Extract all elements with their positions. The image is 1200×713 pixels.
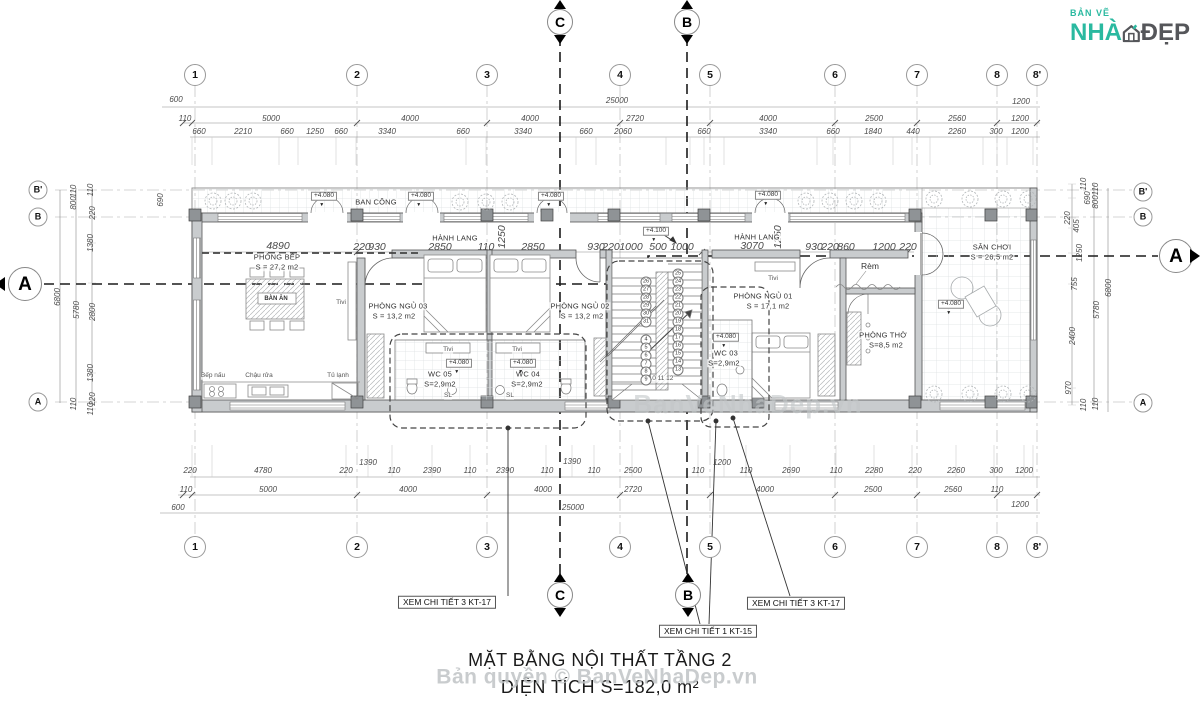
interior-dim-label: 2850 xyxy=(521,242,544,253)
grid-bubble: 5 xyxy=(699,536,721,558)
grid-bubble: 8' xyxy=(1026,536,1048,558)
dim-label: 220 xyxy=(908,467,921,475)
dim-label: 220 xyxy=(183,467,196,475)
grid-bubble: 8' xyxy=(1026,64,1048,86)
elevation-marker: +4.080 xyxy=(755,191,781,200)
logo-word-dep: ĐẸP xyxy=(1141,21,1190,45)
dim-label: 110 xyxy=(87,403,95,416)
dim-label: 2690 xyxy=(782,467,800,475)
fixture-label: SL xyxy=(444,393,452,400)
fixture-label: Tủ lạnh xyxy=(327,373,349,380)
interior-dim-label: 110 xyxy=(478,242,495,253)
room-label: HÀNH LANG xyxy=(733,233,781,241)
dim-label: 220 xyxy=(339,467,352,475)
dim-label: 405 xyxy=(1073,219,1081,232)
dim-label: 25000 xyxy=(562,504,584,512)
dim-label: 2060 xyxy=(614,128,632,136)
interior-dim-label: 1000 xyxy=(619,242,642,253)
grid-bubble: B' xyxy=(1134,183,1153,202)
dim-label: 110 xyxy=(692,467,705,475)
room-label: PHÒNG NGỦ 03 xyxy=(367,302,428,310)
dim-label: 2390 xyxy=(423,467,441,475)
dim-label: 25000 xyxy=(606,97,628,105)
room-label: S=2,9m2 xyxy=(707,359,741,367)
house-logo-icon xyxy=(1122,18,1141,48)
interior-dim-label: 1250 xyxy=(497,225,508,248)
dim-label: 2800 xyxy=(89,303,97,321)
fixture-label: 10 11 12 xyxy=(649,376,674,383)
room-label: S=2,9m2 xyxy=(510,380,544,388)
room-label: S = 13,2 m2 xyxy=(560,312,605,320)
dim-label: 110 xyxy=(464,467,477,475)
dim-label: 4000 xyxy=(759,115,777,123)
interior-dim-label: 860 xyxy=(837,242,855,253)
section-marker: A xyxy=(8,267,42,301)
dim-label: 1380 xyxy=(87,234,95,252)
dim-label: 110 xyxy=(1080,178,1088,191)
elevation-marker: +4.080 xyxy=(446,359,472,368)
dim-label: 4000 xyxy=(534,486,552,494)
grid-bubble: 7 xyxy=(906,64,928,86)
brand-logo: BẢN VẼ NHÀ ĐẸP xyxy=(1070,8,1190,48)
section-marker: C xyxy=(547,9,573,35)
dim-label: 1250 xyxy=(306,128,324,136)
dim-label: 660 xyxy=(826,128,839,136)
dim-label: 800 xyxy=(1092,195,1100,208)
room-label: S=8,5 m2 xyxy=(868,341,904,349)
dim-label: 970 xyxy=(1065,381,1073,394)
dim-label: 110 xyxy=(1080,399,1088,412)
dim-label: 5000 xyxy=(262,115,280,123)
dim-label: 1200 xyxy=(1011,501,1029,509)
grid-bubble: 1 xyxy=(184,536,206,558)
grid-bubble: A xyxy=(29,393,48,412)
elevation-marker: +4.080 xyxy=(538,192,564,201)
dim-label: 110 xyxy=(541,467,554,475)
dim-label: 2260 xyxy=(948,128,966,136)
interior-dim-label: 930 xyxy=(368,242,386,253)
dim-label: 110 xyxy=(588,467,601,475)
fixture-label: Bếp nấu xyxy=(201,373,225,380)
annotation-layer: 6002500012001105000400040002720400025002… xyxy=(0,0,1200,713)
elevation-marker: +4.080 xyxy=(938,300,964,309)
elevation-marker: +4.080 xyxy=(510,359,536,368)
stair-step-number: 9 xyxy=(641,375,652,386)
section-marker: B xyxy=(675,582,701,608)
dim-label: 440 xyxy=(906,128,919,136)
fixture-label: Tivi xyxy=(768,276,778,283)
dim-label: 1390 xyxy=(563,458,581,466)
room-label: HÀNH LANG xyxy=(431,234,479,242)
dim-label: 5780 xyxy=(73,301,81,319)
dim-label: 3340 xyxy=(514,128,532,136)
fixture-label: Tivi xyxy=(443,347,453,354)
room-label: PHÒNG THỜ xyxy=(858,331,908,339)
grid-bubble: 2 xyxy=(346,64,368,86)
dim-label: 2720 xyxy=(624,486,642,494)
dim-label: 660 xyxy=(280,128,293,136)
copyright-watermark: Bản quyền © BanVeNhaDep.vn xyxy=(436,667,757,688)
section-marker: B xyxy=(674,9,700,35)
dim-label: 300 xyxy=(989,467,1002,475)
dim-label: 110 xyxy=(87,184,95,197)
elevation-marker: +4.080 xyxy=(311,192,337,201)
room-label: S = 17,1 m2 xyxy=(746,302,791,310)
grid-bubble: B' xyxy=(29,181,48,200)
grid-bubble: 5 xyxy=(699,64,721,86)
interior-dim-label: 220 xyxy=(899,242,917,253)
logo-word-nha: NHÀ xyxy=(1070,21,1122,45)
dim-label: 6800 xyxy=(1105,279,1113,297)
dim-label: 660 xyxy=(334,128,347,136)
interior-dim-label: 1200 xyxy=(872,242,895,253)
dim-label: 1200 xyxy=(1012,98,1030,106)
grid-bubble: 6 xyxy=(824,64,846,86)
dim-label: 660 xyxy=(579,128,592,136)
dim-label: 4000 xyxy=(756,486,774,494)
room-label: S = 27,2 m2 xyxy=(255,263,300,271)
room-label: S = 26,5 m2 xyxy=(970,253,1015,261)
dim-label: 2390 xyxy=(496,467,514,475)
dim-label: 2560 xyxy=(948,115,966,123)
stair-step-number: 13 xyxy=(673,365,684,376)
dim-label: 1200 xyxy=(1011,128,1029,136)
dim-label: 660 xyxy=(697,128,710,136)
dim-label: 800 xyxy=(70,196,78,209)
dim-label: 1390 xyxy=(359,459,377,467)
dim-label: 2400 xyxy=(1069,327,1077,345)
interior-dim-label: 220 xyxy=(602,242,620,253)
grid-bubble: 6 xyxy=(824,536,846,558)
dim-label: 1840 xyxy=(864,128,882,136)
dim-label: 690 xyxy=(157,193,165,206)
dim-label: 600 xyxy=(171,504,184,512)
watermark-center: BanVeNhaDep.vn xyxy=(633,391,862,417)
dim-label: 6800 xyxy=(54,288,62,306)
room-label: S = 13,2 m2 xyxy=(372,312,417,320)
fixture-label: Tivi xyxy=(512,347,522,354)
dim-label: 5000 xyxy=(259,486,277,494)
dim-label: 755 xyxy=(1071,277,1079,290)
dim-label: 110 xyxy=(388,467,401,475)
grid-bubble: 8 xyxy=(986,64,1008,86)
elevation-marker: +4.080 xyxy=(408,192,434,201)
grid-bubble: 3 xyxy=(476,536,498,558)
detail-callout: XEM CHI TIẾT 3 KT-17 xyxy=(398,596,496,609)
dim-label: 220 xyxy=(89,206,97,219)
room-label: PHÒNG NGỦ 02 xyxy=(549,302,610,310)
dim-label: 2560 xyxy=(944,486,962,494)
dim-label: 110 xyxy=(1092,398,1100,411)
dim-label: 660 xyxy=(192,128,205,136)
interior-dim-label: 930 xyxy=(805,242,823,253)
fixture-label: SL xyxy=(506,393,514,400)
room-label: SÂN CHƠI xyxy=(972,243,1012,251)
room-label: WC 03 xyxy=(713,349,739,357)
fixture-label: Rèm xyxy=(861,262,879,271)
dim-label: 1380 xyxy=(87,364,95,382)
fixture-label: Tivi xyxy=(336,300,346,307)
dim-label: 110 xyxy=(991,486,1004,494)
dim-label: 2280 xyxy=(865,467,883,475)
dim-label: 2500 xyxy=(624,467,642,475)
interior-dim-label: 4890 xyxy=(266,241,289,252)
room-label: BAN CÔNG xyxy=(354,198,398,206)
dim-label: 110 xyxy=(740,467,753,475)
dim-label: 110 xyxy=(1092,183,1100,196)
dim-label: 2500 xyxy=(865,115,883,123)
grid-bubble: 7 xyxy=(906,536,928,558)
interior-dim-label: 2850 xyxy=(428,242,451,253)
grid-bubble: 4 xyxy=(609,64,631,86)
dim-label: 660 xyxy=(456,128,469,136)
dim-label: 1200 xyxy=(713,459,731,467)
interior-dim-label: 220 xyxy=(821,242,839,253)
stair-step-number: 31 xyxy=(641,317,652,328)
dim-label: 300 xyxy=(989,128,1002,136)
dim-label: 110 xyxy=(179,115,192,123)
grid-bubble: A xyxy=(1134,394,1153,413)
interior-dim-label: 1000 xyxy=(670,242,693,253)
grid-bubble: B xyxy=(1134,208,1153,227)
grid-bubble: 8 xyxy=(986,536,1008,558)
elevation-marker: +4.080 xyxy=(713,333,739,342)
dim-label: 1200 xyxy=(1011,115,1029,123)
detail-callout: XEM CHI TIẾT 1 KT-15 xyxy=(659,625,757,638)
dim-label: 2500 xyxy=(864,486,882,494)
grid-bubble: 3 xyxy=(476,64,498,86)
interior-dim-label: 3070 xyxy=(740,241,763,252)
floor-plan-sheet: 6002500012001105000400040002720400025002… xyxy=(0,0,1200,713)
room-label: S=2,9m2 xyxy=(423,380,457,388)
dim-label: 4000 xyxy=(401,115,419,123)
grid-bubble: B xyxy=(29,208,48,227)
dim-label: 2210 xyxy=(234,128,252,136)
detail-callout: XEM CHI TIẾT 3 KT-17 xyxy=(747,597,845,610)
dim-label: 600 xyxy=(169,96,182,104)
room-label: WC 05 xyxy=(427,370,453,378)
section-marker: A xyxy=(1159,239,1193,273)
dim-label: 3340 xyxy=(759,128,777,136)
dim-label: 220 xyxy=(1064,211,1072,224)
dim-label: 5780 xyxy=(1093,301,1101,319)
section-marker: C xyxy=(547,582,573,608)
dim-label: 1200 xyxy=(1015,467,1033,475)
dim-label: 110 xyxy=(180,486,193,494)
dim-label: 4780 xyxy=(254,467,272,475)
dim-label: 2720 xyxy=(626,115,644,123)
dim-label: 110 xyxy=(830,467,843,475)
dim-label: 4000 xyxy=(399,486,417,494)
dim-label: 4000 xyxy=(521,115,539,123)
dim-label: 1250 xyxy=(1076,244,1084,262)
grid-bubble: 1 xyxy=(184,64,206,86)
logo-tagline: BẢN VẼ xyxy=(1070,8,1190,18)
interior-dim-label: 500 xyxy=(649,242,667,253)
fixture-label: Chậu rửa xyxy=(245,373,272,380)
grid-bubble: 2 xyxy=(346,536,368,558)
dim-label: 3340 xyxy=(378,128,396,136)
dim-label: 2260 xyxy=(947,467,965,475)
room-label: PHÒNG NGỦ 01 xyxy=(732,292,793,300)
grid-bubble: 4 xyxy=(609,536,631,558)
fixture-label: BÀN ĂN xyxy=(264,296,287,302)
room-label: PHÒNG BẾP xyxy=(253,253,301,261)
elevation-marker: +4.100 xyxy=(643,227,669,236)
dim-label: 110 xyxy=(70,398,78,411)
